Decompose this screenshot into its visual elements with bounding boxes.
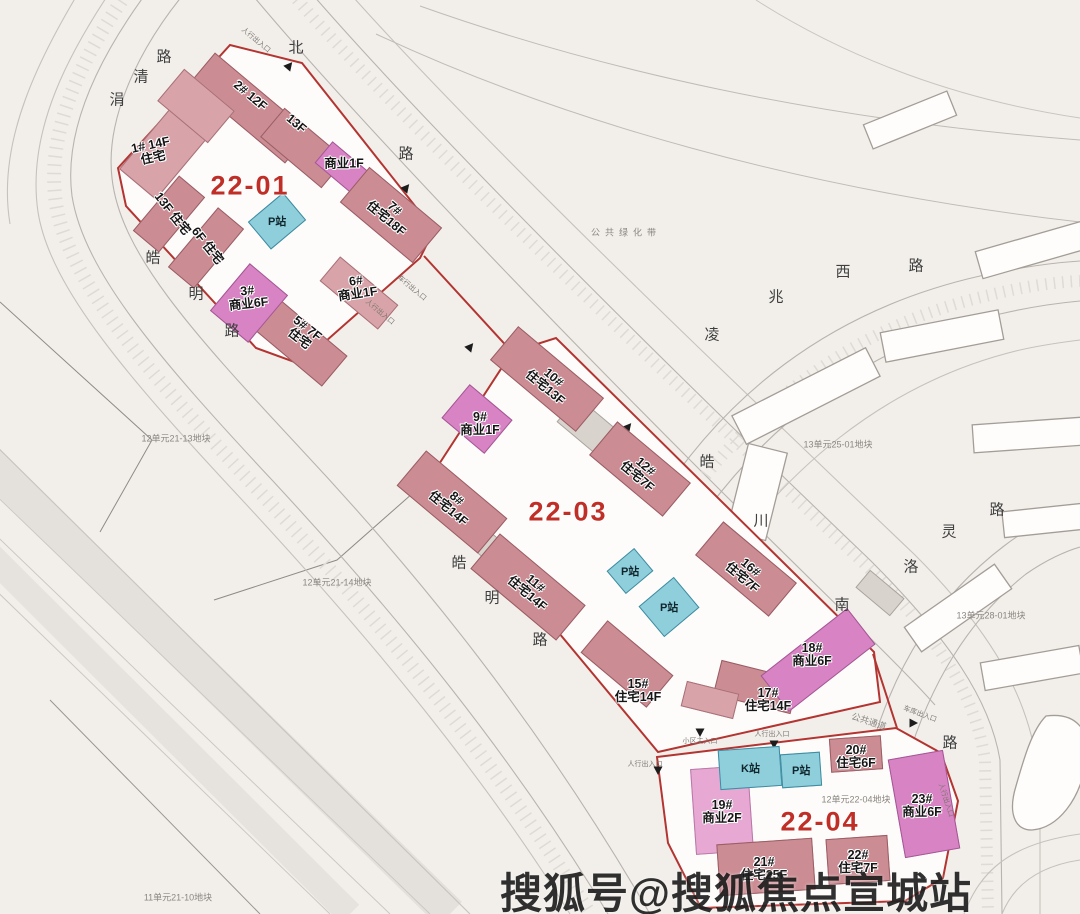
label-building-17: 17#住宅14F: [745, 687, 792, 714]
road-char: 川: [753, 510, 768, 531]
label-building-15: 15#住宅14F: [615, 678, 662, 705]
road-char: 明: [484, 587, 499, 608]
road-char: 皓: [145, 247, 160, 268]
road-char: 西: [835, 261, 850, 282]
parcel-label-22-04: 12单元22-04地块: [821, 793, 890, 806]
parcel-label-21-10: 11单元21-10地块: [144, 891, 212, 904]
road-char: 路: [398, 143, 413, 164]
label-building-19: 19#商业2F: [702, 799, 742, 826]
parcel-label-25-01: 13单元25-01地块: [803, 438, 872, 451]
plot-label-22-03: 22-03: [528, 497, 607, 528]
label-building-9: 9#商业1F: [460, 411, 500, 438]
label-building-23: 23#商业6F: [902, 793, 942, 820]
plot-label-22-01: 22-01: [210, 171, 289, 202]
parcel-label-21-14: 12单元21-14地块: [302, 576, 371, 589]
road-char: 路: [156, 46, 171, 67]
station-label: P站: [268, 213, 286, 229]
road-char: 皓: [451, 552, 466, 573]
road-char: 兆: [768, 286, 783, 307]
road-char: 洛: [903, 556, 918, 577]
road-char: 清: [133, 66, 148, 87]
plot-label-22-04: 22-04: [780, 807, 859, 838]
entrance-label: 人行出入口: [755, 729, 790, 739]
entrance-label: 小区主入口: [683, 736, 718, 746]
station-label: P站: [660, 599, 678, 615]
label-commerce-1f: 商业1F: [324, 157, 364, 170]
entrance-label: 人行出入口: [628, 759, 663, 769]
road-char: 南: [834, 594, 849, 615]
road-char: 明: [188, 283, 203, 304]
road-char: 路: [942, 732, 957, 753]
road-char: 涓: [109, 89, 124, 110]
parcel-label-21-13: 12单元21-13地块: [141, 432, 210, 445]
road-char: 路: [224, 320, 239, 341]
parcel-label-28-01: 13单元28-01地块: [956, 609, 1025, 622]
label-building-20: 20#住宅6F: [836, 744, 876, 771]
k-station-2204: K站: [718, 746, 783, 790]
parcel-label-greenbelt: 公共绿化带: [591, 226, 661, 239]
label-building-3: 3#商业6F: [227, 283, 269, 313]
road-char: 路: [989, 499, 1004, 520]
road-char: 皓: [699, 451, 714, 472]
road-char: 路: [908, 255, 923, 276]
sohu-watermark: 搜狐号@搜狐焦点宣城站: [500, 860, 972, 914]
station-label: P站: [621, 563, 639, 579]
parking-station-2204: P站: [780, 752, 822, 789]
road-char: 灵: [941, 521, 956, 542]
road-char: 路: [532, 629, 547, 650]
site-plan-map: P站 P站 P站 K站 P站 2# 12F 13F 商业1F 1# 14F住宅 …: [0, 0, 1080, 914]
station-label: K站: [741, 760, 760, 776]
elevated-road-bands: [0, 430, 470, 914]
station-label: P站: [792, 762, 810, 778]
label-building-18: 18#商业6F: [792, 642, 832, 669]
road-char: 北: [288, 37, 303, 58]
road-char: 凌: [704, 324, 719, 345]
